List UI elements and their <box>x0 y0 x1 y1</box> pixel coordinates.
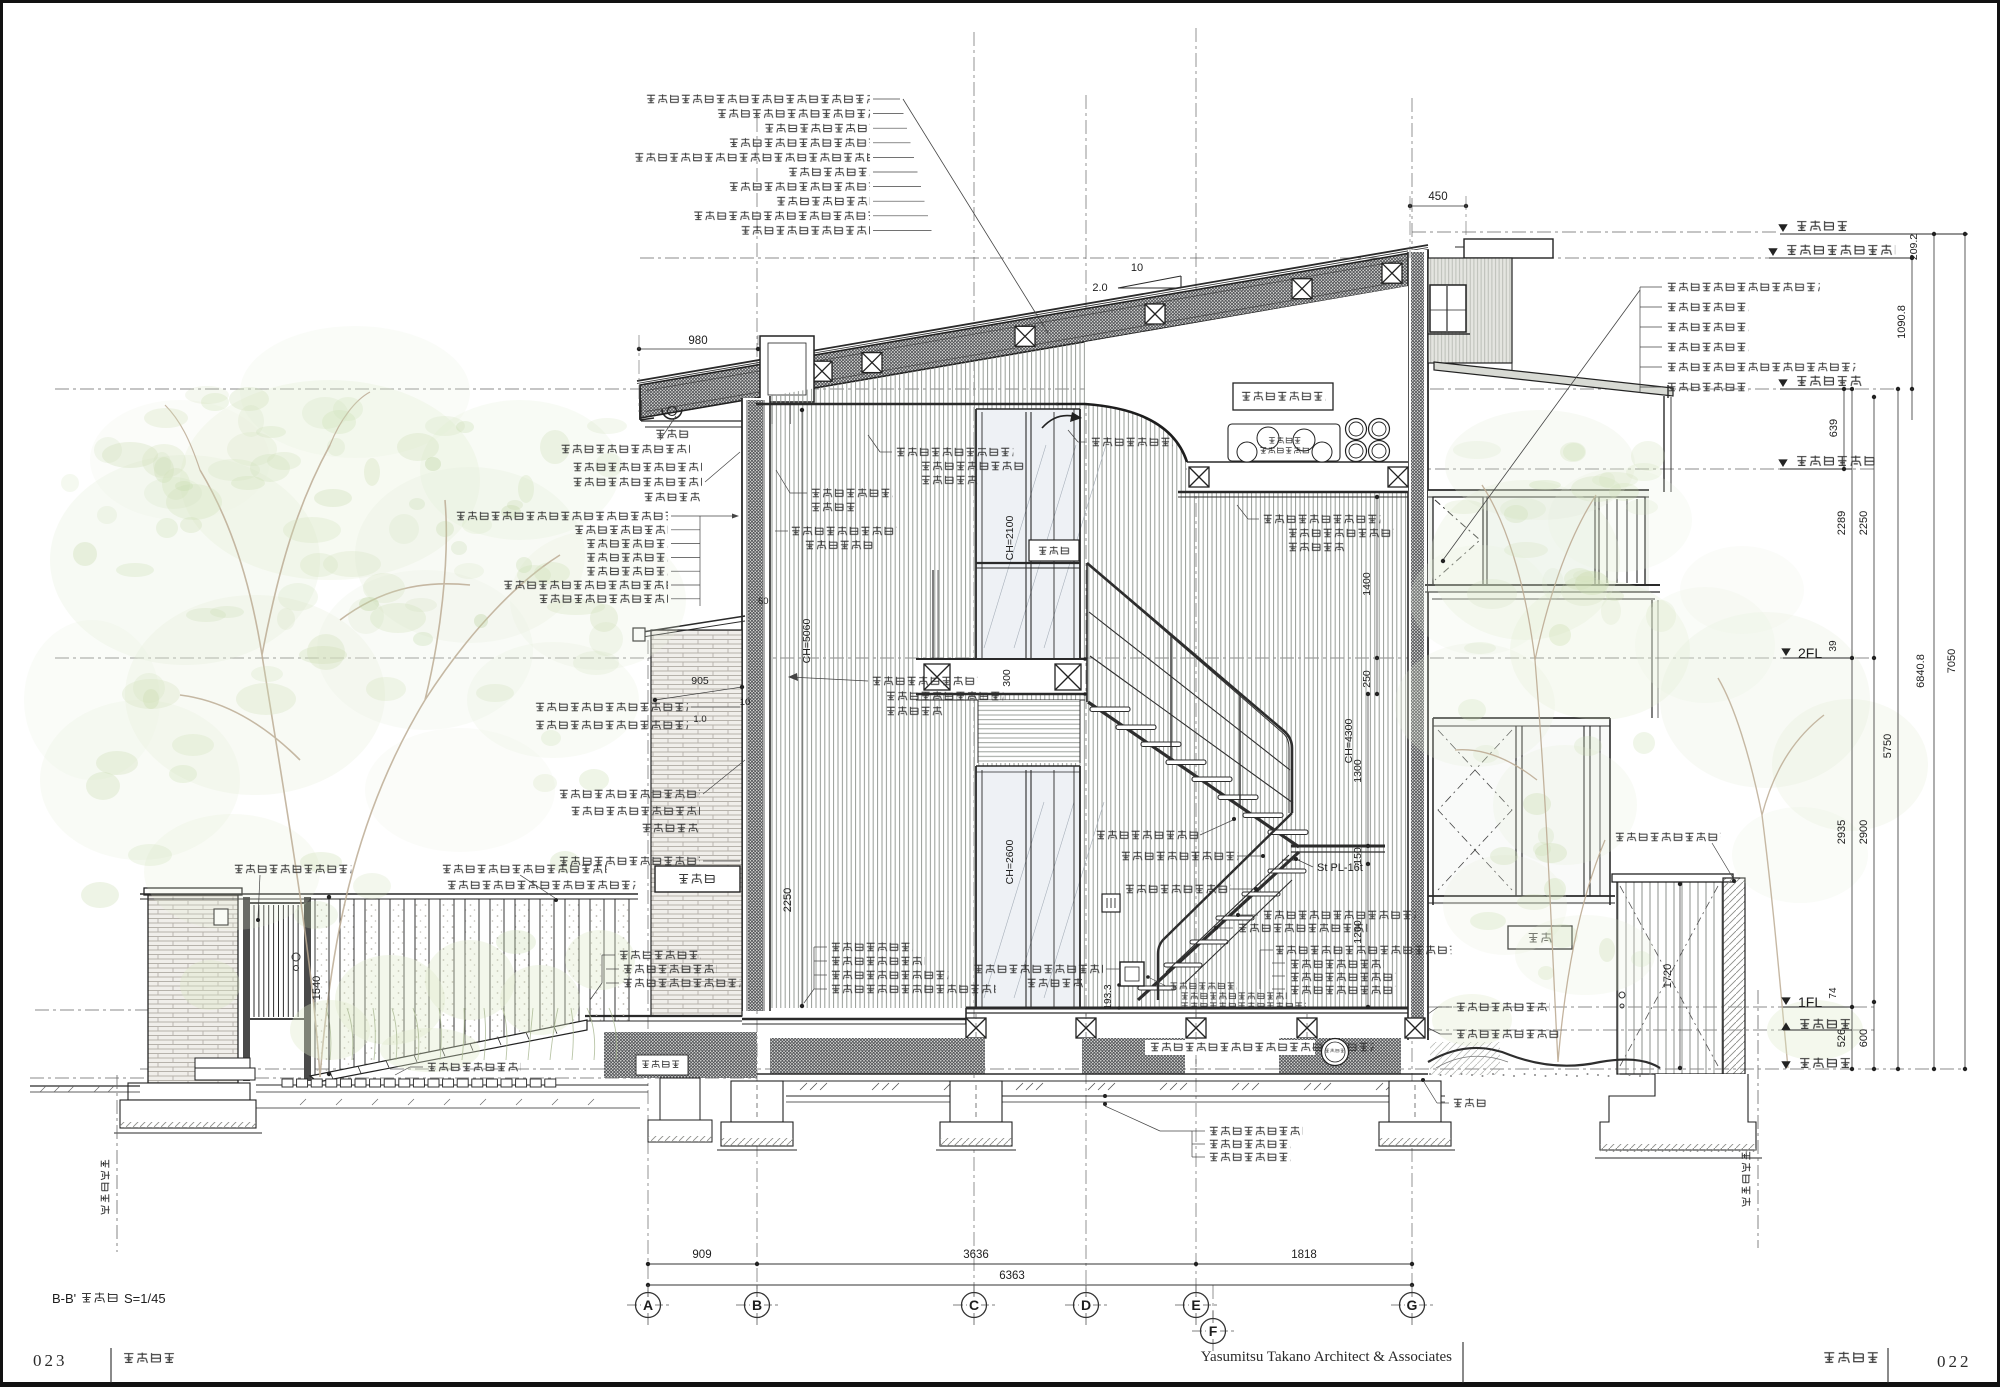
svg-text:CH=5060: CH=5060 <box>801 619 813 664</box>
svg-text:B: B <box>752 1297 762 1313</box>
svg-text:7050: 7050 <box>1946 649 1958 673</box>
svg-text:1300: 1300 <box>1352 759 1364 783</box>
svg-text:CH=2600: CH=2600 <box>1004 840 1016 885</box>
svg-text:74: 74 <box>1828 987 1839 999</box>
svg-text:209.2: 209.2 <box>1908 234 1920 260</box>
svg-text:2250: 2250 <box>1858 511 1870 535</box>
svg-text:150: 150 <box>1352 847 1364 865</box>
svg-text:60: 60 <box>758 596 769 607</box>
svg-text:2935: 2935 <box>1836 820 1848 844</box>
svg-text:5750: 5750 <box>1882 734 1894 758</box>
svg-text:E: E <box>1191 1297 1200 1313</box>
svg-text:639: 639 <box>1828 419 1840 437</box>
svg-text:2250: 2250 <box>782 888 794 912</box>
svg-text:G: G <box>1407 1297 1418 1313</box>
svg-text:193.3: 193.3 <box>1103 984 1114 1009</box>
svg-text:2900: 2900 <box>1858 820 1870 844</box>
svg-text:39: 39 <box>1828 640 1839 652</box>
svg-text:023: 023 <box>33 1351 68 1370</box>
svg-text:526: 526 <box>1836 1029 1848 1047</box>
svg-text:CH=4300: CH=4300 <box>1343 719 1355 764</box>
svg-text:1090.8: 1090.8 <box>1896 305 1908 339</box>
svg-text:Yasumitsu Takano Architect & A: Yasumitsu Takano Architect & Associates <box>1201 1349 1452 1365</box>
svg-text:A: A <box>643 1297 653 1313</box>
svg-text:6840.8: 6840.8 <box>1915 654 1927 688</box>
svg-text:905: 905 <box>691 675 709 687</box>
svg-text:1FL: 1FL <box>1798 994 1822 1010</box>
svg-text:1200: 1200 <box>1352 920 1364 944</box>
svg-text:909: 909 <box>692 1249 711 1261</box>
svg-text:C: C <box>969 1297 979 1313</box>
svg-text:1400: 1400 <box>1361 572 1373 596</box>
svg-text:300: 300 <box>1001 669 1013 687</box>
svg-text:1818: 1818 <box>1291 1249 1317 1261</box>
svg-text:3636: 3636 <box>963 1249 989 1261</box>
svg-text:F: F <box>1209 1323 1218 1339</box>
svg-text:250: 250 <box>1361 670 1373 688</box>
svg-text:S=1/45: S=1/45 <box>124 1291 166 1306</box>
svg-text:10: 10 <box>740 697 751 708</box>
svg-text:980: 980 <box>688 335 707 347</box>
svg-text:1.0: 1.0 <box>693 714 706 725</box>
svg-text:CH=2100: CH=2100 <box>1004 516 1016 561</box>
svg-text:2FL: 2FL <box>1798 645 1822 661</box>
svg-text:10: 10 <box>1131 262 1143 274</box>
svg-text:450: 450 <box>1428 191 1447 203</box>
svg-text:2289: 2289 <box>1836 511 1848 535</box>
svg-text:022: 022 <box>1937 1352 1972 1371</box>
svg-text:2.0: 2.0 <box>1092 282 1107 294</box>
svg-text:D: D <box>1081 1297 1091 1313</box>
svg-text:6363: 6363 <box>999 1270 1025 1282</box>
svg-text:B-B': B-B' <box>52 1291 76 1306</box>
svg-text:1720: 1720 <box>1662 964 1674 988</box>
svg-text:1540: 1540 <box>311 976 323 1000</box>
svg-text:600: 600 <box>1858 1029 1870 1047</box>
